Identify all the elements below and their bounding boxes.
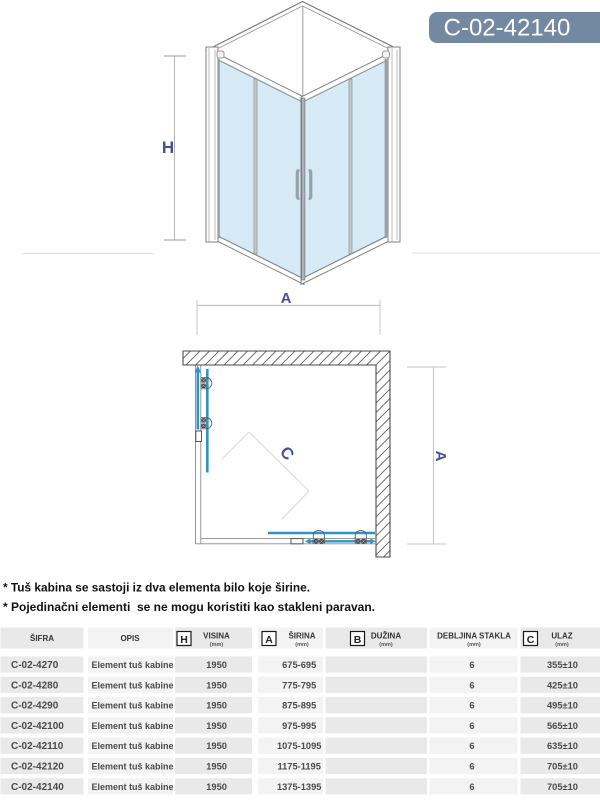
svg-text:635±10: 635±10 [547, 741, 578, 751]
svg-text:1950: 1950 [206, 741, 227, 751]
svg-text:C-02-42110: C-02-42110 [11, 741, 64, 752]
svg-text:ŠIFRA: ŠIFRA [30, 634, 54, 643]
svg-text:ŠIRINA: ŠIRINA [288, 632, 315, 641]
svg-text:6: 6 [469, 701, 474, 711]
svg-text:B: B [354, 634, 362, 646]
svg-text:6: 6 [469, 660, 474, 670]
svg-text:1075-1095: 1075-1095 [277, 741, 321, 751]
svg-text:705±10: 705±10 [547, 782, 578, 792]
svg-text:1950: 1950 [206, 660, 227, 670]
svg-text:VISINA: VISINA [203, 632, 230, 641]
svg-text:6: 6 [469, 762, 474, 772]
svg-text:Element tuš kabine: Element tuš kabine [92, 782, 174, 792]
svg-text:(mm): (mm) [555, 642, 569, 648]
svg-text:1375-1395: 1375-1395 [277, 782, 321, 792]
svg-text:ULAZ: ULAZ [551, 632, 572, 641]
svg-text:1950: 1950 [206, 701, 227, 711]
svg-text:Element tuš kabine: Element tuš kabine [92, 721, 174, 731]
svg-text:1175-1195: 1175-1195 [277, 762, 320, 772]
svg-text:C-02-42140: C-02-42140 [11, 782, 64, 793]
svg-text:975-995: 975-995 [282, 721, 316, 731]
svg-text:875-895: 875-895 [282, 701, 316, 711]
svg-text:DEBLJINA STAKLA: DEBLJINA STAKLA [437, 632, 511, 641]
svg-text:425±10: 425±10 [547, 680, 578, 690]
svg-text:6: 6 [469, 782, 474, 792]
svg-text:6: 6 [469, 680, 474, 690]
svg-text:775-795: 775-795 [282, 680, 316, 690]
svg-text:(mm): (mm) [467, 642, 481, 648]
svg-text:Element tuš kabine: Element tuš kabine [92, 660, 174, 670]
svg-text:6: 6 [469, 741, 474, 751]
svg-text:1950: 1950 [206, 721, 227, 731]
svg-text:6: 6 [469, 721, 474, 731]
svg-text:(mm): (mm) [379, 642, 393, 648]
svg-text:705±10: 705±10 [547, 762, 578, 772]
svg-text:* Pojedinačni elementi se ne: * Pojedinačni elementi se ne mogu korist… [3, 602, 375, 614]
svg-text:H: H [162, 138, 174, 157]
svg-text:A: A [432, 451, 449, 462]
svg-text:OPIS: OPIS [120, 634, 140, 643]
svg-text:(mm): (mm) [295, 642, 309, 648]
svg-text:1950: 1950 [206, 680, 227, 690]
svg-text:(mm): (mm) [210, 642, 224, 648]
svg-text:C-02-42100: C-02-42100 [11, 721, 64, 732]
svg-text:C-02-4270: C-02-4270 [11, 660, 59, 671]
svg-text:A: A [281, 290, 292, 307]
svg-text:Element tuš kabine: Element tuš kabine [92, 701, 174, 711]
svg-text:C-02-4280: C-02-4280 [11, 680, 59, 691]
svg-text:* Tuš kabina se sastoji iz dva: * Tuš kabina se sastoji iz dva elementa … [3, 583, 310, 595]
svg-text:C: C [527, 634, 535, 646]
svg-text:H: H [180, 634, 188, 646]
svg-text:A: A [265, 634, 273, 646]
svg-text:C-02-4290: C-02-4290 [11, 701, 59, 712]
svg-text:C-02-42140: C-02-42140 [444, 15, 571, 42]
svg-text:355±10: 355±10 [547, 660, 578, 670]
svg-text:495±10: 495±10 [547, 701, 578, 711]
svg-text:1950: 1950 [206, 762, 227, 772]
svg-text:675-695: 675-695 [282, 660, 316, 670]
svg-text:Element tuš kabine: Element tuš kabine [92, 680, 174, 690]
svg-text:DUŽINA: DUŽINA [371, 632, 401, 641]
svg-text:Element tuš kabine: Element tuš kabine [92, 741, 174, 751]
svg-text:Element tuš kabine: Element tuš kabine [92, 762, 174, 772]
svg-text:565±10: 565±10 [547, 721, 578, 731]
svg-text:C-02-42120: C-02-42120 [11, 762, 64, 773]
svg-text:1950: 1950 [206, 782, 227, 792]
